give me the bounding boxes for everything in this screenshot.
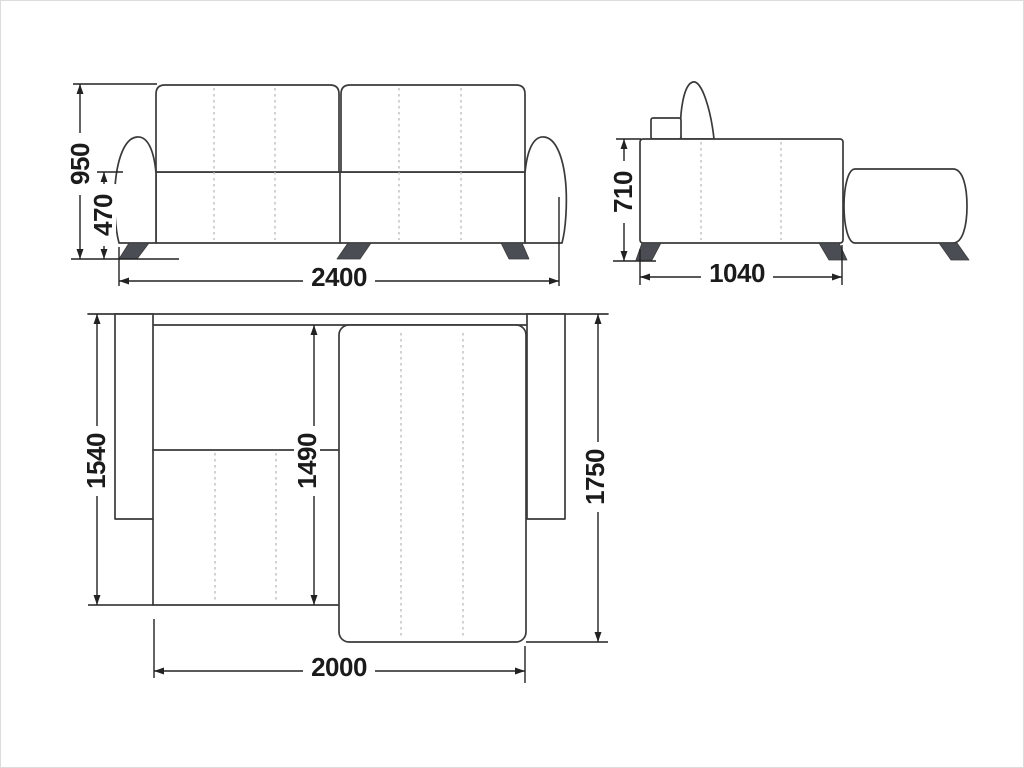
side-depth-label: 1040 xyxy=(709,258,765,288)
plan-chaise-depth-label-group: 1750 xyxy=(580,442,610,512)
plan-chaise-section xyxy=(339,325,526,642)
diagram-svg: 950 470 2400 xyxy=(1,1,1023,767)
side-armrest-top xyxy=(651,118,681,139)
arrow-down xyxy=(77,249,84,259)
arrow-down xyxy=(311,595,318,605)
plan-bed-length-label-group: 2000 xyxy=(303,652,375,682)
arrow-right xyxy=(832,274,842,281)
side-body xyxy=(640,139,843,243)
front-leg-right xyxy=(501,243,529,259)
plan-seat-depth-label: 1490 xyxy=(292,433,322,489)
plan-chaise-depth-label: 1750 xyxy=(580,449,610,505)
arrow-up xyxy=(621,139,628,149)
plan-seat-depth-label-group: 1490 xyxy=(292,426,322,496)
front-back-cushion-right xyxy=(341,85,525,172)
front-width-label-group: 2400 xyxy=(303,262,375,292)
arrow-left xyxy=(119,278,129,285)
arrow-left xyxy=(640,274,650,281)
plan-bed-length-label: 2000 xyxy=(311,652,367,682)
arrow-down xyxy=(621,251,628,261)
plan-left-depth-label: 1540 xyxy=(81,433,111,489)
front-armrest-left xyxy=(115,137,156,243)
front-width-label: 2400 xyxy=(311,262,367,292)
front-back-cushion-left xyxy=(156,85,339,172)
arrow-up xyxy=(311,325,318,335)
side-chaise-extension xyxy=(844,169,967,243)
plan-armrest-left xyxy=(115,314,153,519)
front-armrest-right xyxy=(525,137,566,243)
front-seat-height-label-group: 470 xyxy=(88,184,118,246)
arrow-down xyxy=(101,249,108,259)
side-back-pillow xyxy=(681,82,714,139)
side-leg-center xyxy=(819,243,847,260)
side-height-label-group: 710 xyxy=(608,161,638,223)
front-leg-center xyxy=(337,243,371,259)
side-depth-label-group: 1040 xyxy=(701,258,773,288)
plan-armrest-right xyxy=(527,314,565,519)
arrow-down xyxy=(595,632,602,642)
plan-left-depth-label-group: 1540 xyxy=(81,426,111,496)
side-height-label: 710 xyxy=(608,171,638,213)
plan-view: 1540 1490 1750 2000 xyxy=(81,314,610,683)
sofa-dimension-diagram: 950 470 2400 xyxy=(0,0,1024,768)
front-height-label: 950 xyxy=(65,143,95,185)
arrow-left xyxy=(154,668,164,675)
arrow-right xyxy=(549,278,559,285)
arrow-up xyxy=(595,314,602,324)
arrow-up xyxy=(101,172,108,182)
front-view: 950 470 2400 xyxy=(65,84,566,292)
side-leg-right xyxy=(939,243,969,260)
arrow-up xyxy=(94,314,101,324)
front-seat-height-label: 470 xyxy=(88,194,118,236)
arrow-down xyxy=(94,595,101,605)
front-leg-left xyxy=(119,243,149,259)
side-view: 710 1040 xyxy=(608,82,969,288)
arrow-right xyxy=(515,668,525,675)
arrow-up xyxy=(77,84,84,94)
